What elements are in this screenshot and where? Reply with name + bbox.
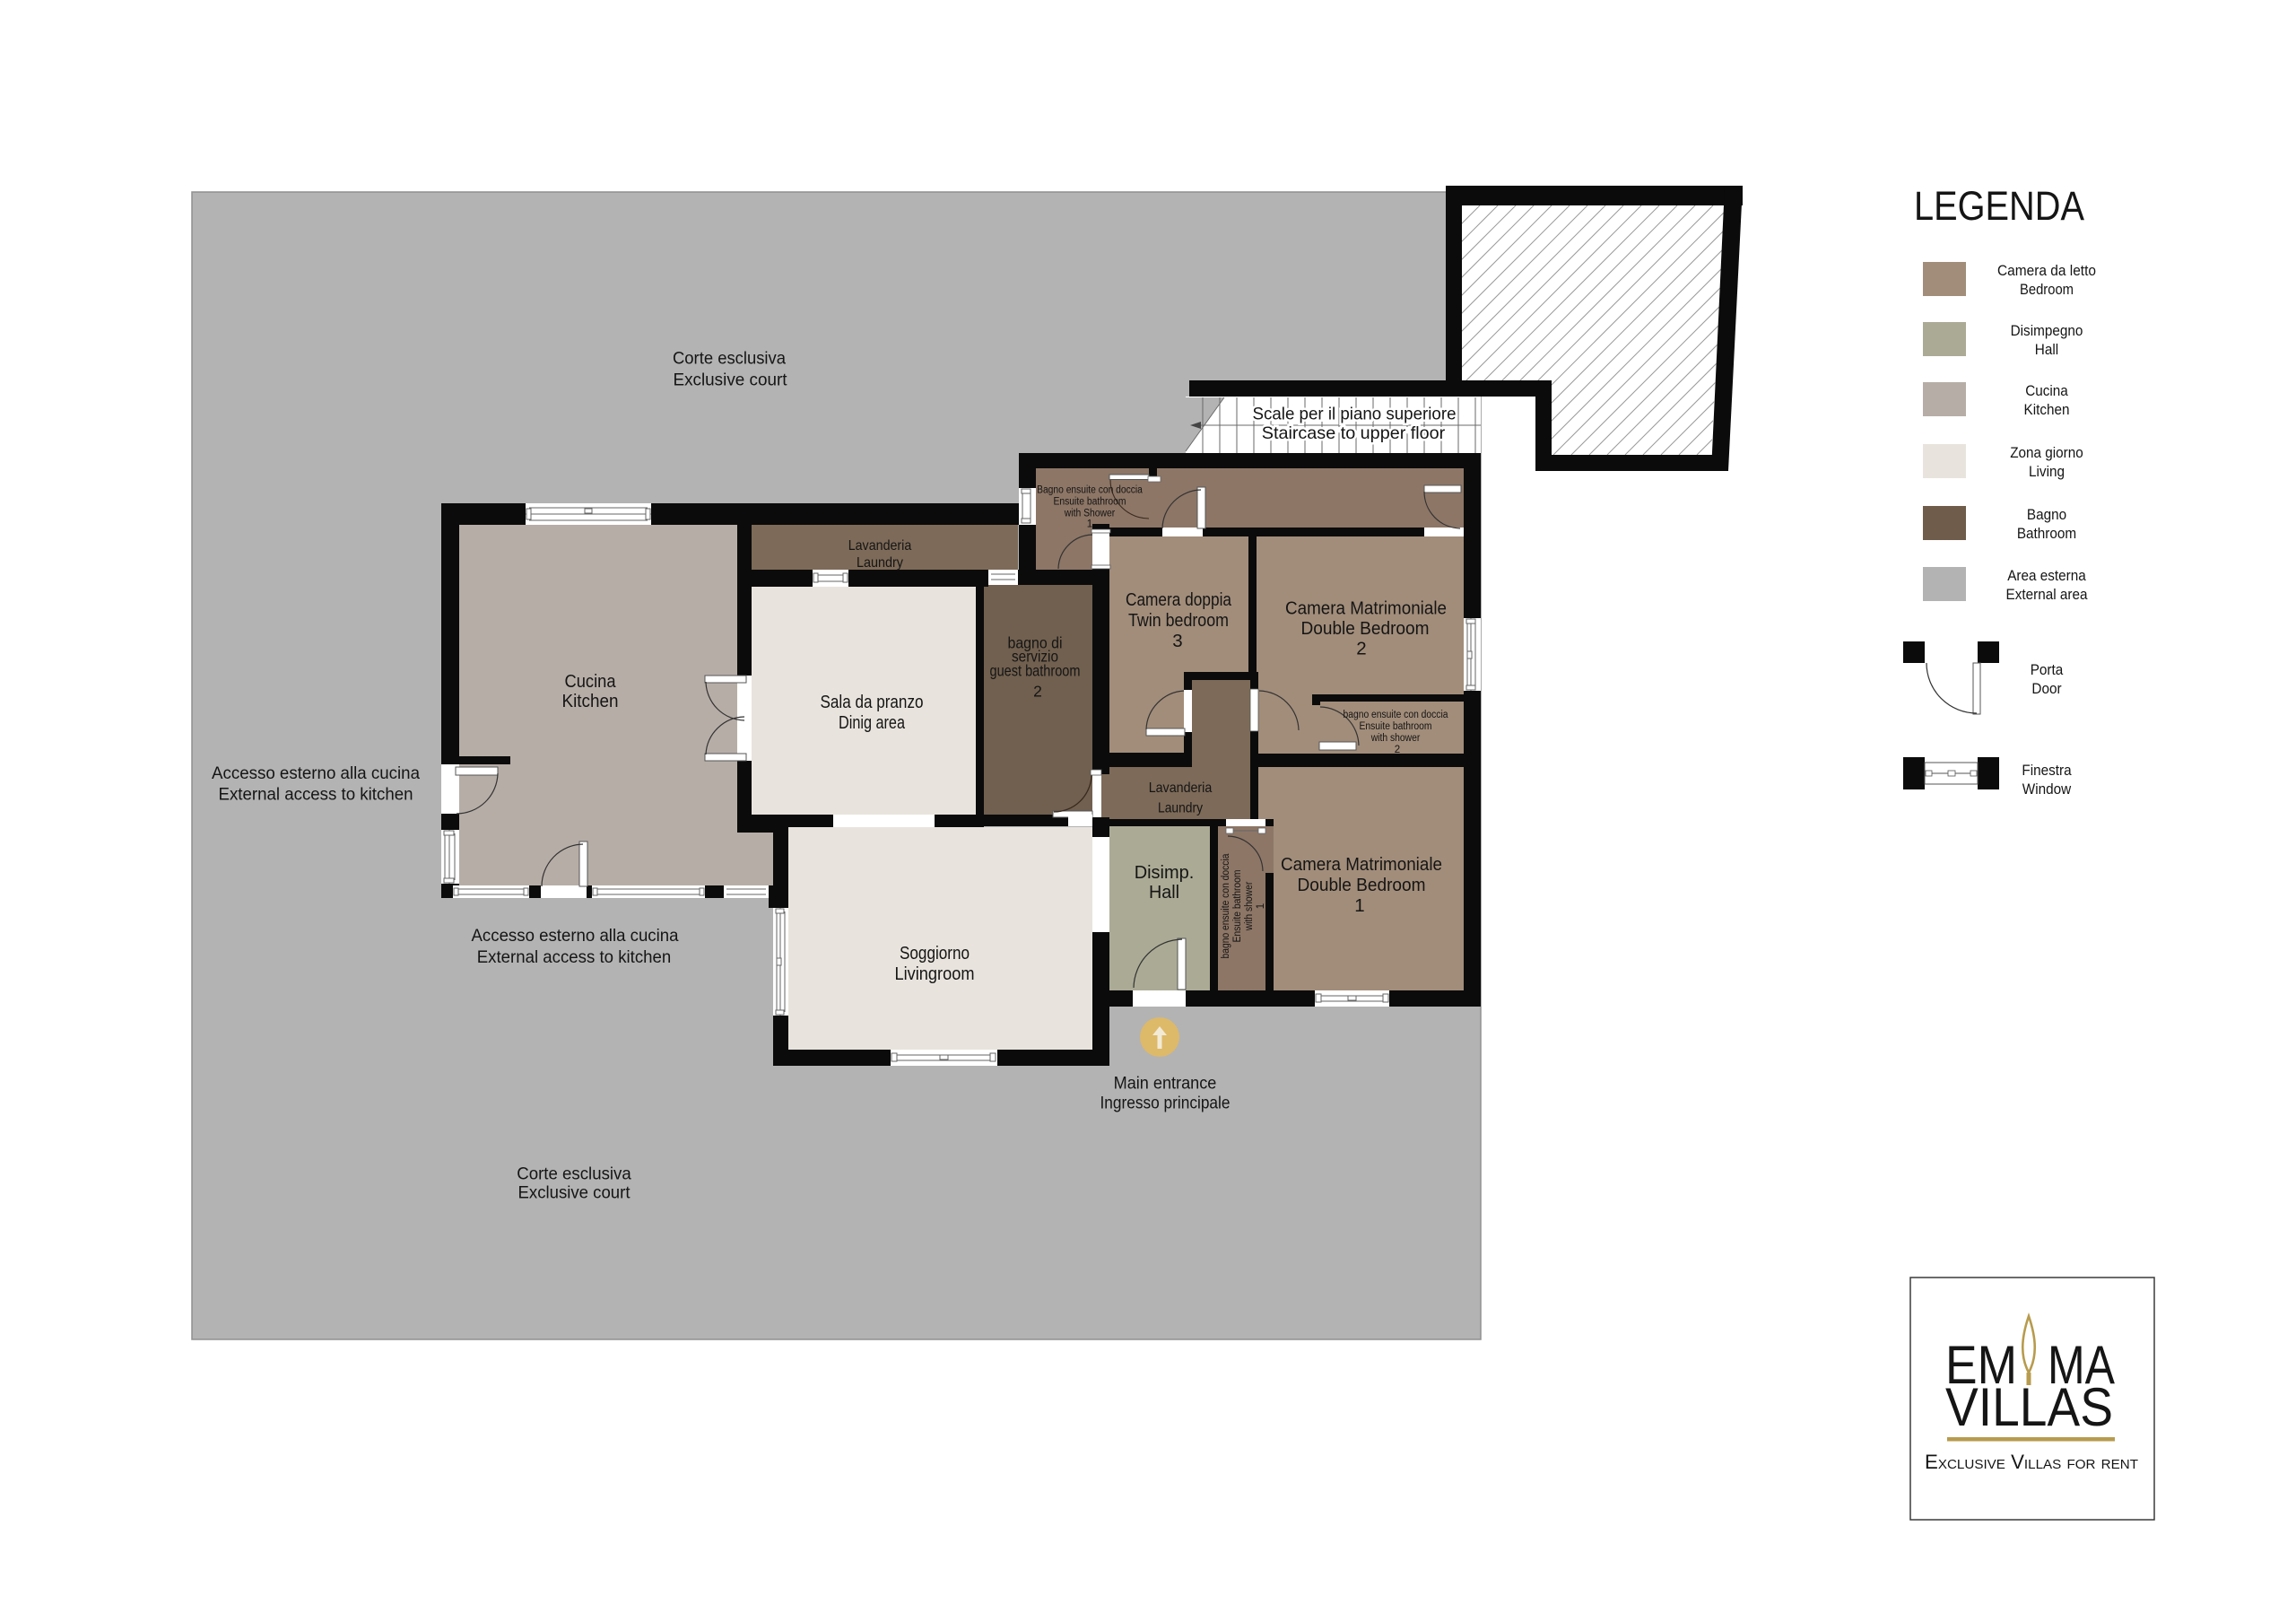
svg-text:Porta: Porta (2031, 661, 2064, 678)
svg-text:Dinig area: Dinig area (839, 712, 905, 733)
svg-text:Ensuite bathroom: Ensuite bathroom (1053, 497, 1126, 508)
svg-text:3: 3 (1172, 631, 1182, 651)
svg-text:bagno ensuite con doccia: bagno ensuite con doccia (1344, 710, 1449, 720)
svg-text:guest bathroom: guest bathroom (990, 662, 1081, 680)
svg-text:Lavanderia: Lavanderia (1149, 780, 1213, 796)
svg-text:Area esterna: Area esterna (2007, 567, 2086, 584)
svg-text:Zona giorno: Zona giorno (2010, 444, 2083, 461)
svg-text:Camera doppia: Camera doppia (1126, 589, 1231, 610)
svg-text:Hall: Hall (1149, 882, 1179, 903)
svg-text:Cucina: Cucina (2025, 382, 2068, 399)
svg-text:Living: Living (2029, 463, 2065, 480)
svg-text:Double Bedroom: Double Bedroom (1298, 875, 1426, 895)
svg-text:External area: External area (2006, 586, 2088, 603)
svg-text:Hall: Hall (2035, 341, 2058, 358)
svg-text:Disimp.: Disimp. (1135, 862, 1195, 883)
svg-text:Scale per il piano superiore: Scale per il piano superiore (1253, 405, 1457, 424)
svg-text:with Shower: with Shower (1064, 509, 1115, 519)
svg-text:Laundry: Laundry (857, 555, 903, 571)
svg-text:Cucina: Cucina (565, 671, 617, 692)
svg-text:Ingresso principale: Ingresso principale (1100, 1094, 1231, 1113)
svg-text:Ensuite bathroom: Ensuite bathroom (1232, 869, 1243, 942)
svg-text:Kitchen: Kitchen (562, 691, 619, 711)
svg-text:Door: Door (2031, 680, 2061, 697)
svg-text:2: 2 (1395, 745, 1400, 755)
svg-text:Finestra: Finestra (2022, 762, 2072, 779)
svg-text:Ensuite bathroom: Ensuite bathroom (1359, 721, 1431, 732)
svg-text:Bagno ensuite con doccia: Bagno ensuite con doccia (1037, 485, 1143, 496)
svg-text:Exclusive Villas for rent: Exclusive Villas for rent (1925, 1451, 2138, 1473)
svg-text:1: 1 (1256, 903, 1266, 909)
svg-text:External access to kitchen: External access to kitchen (477, 947, 672, 967)
svg-text:Corte esclusiva: Corte esclusiva (517, 1164, 631, 1184)
svg-text:Bagno: Bagno (2027, 506, 2066, 523)
svg-text:Twin bedroom: Twin bedroom (1128, 610, 1229, 631)
svg-text:Staircase to upper floor: Staircase to upper floor (1262, 423, 1446, 443)
svg-text:Camera Matrimoniale: Camera Matrimoniale (1285, 598, 1447, 619)
svg-text:with shower: with shower (1370, 733, 1421, 744)
svg-text:Bedroom: Bedroom (2020, 281, 2074, 298)
svg-text:Corte esclusiva: Corte esclusiva (673, 349, 786, 369)
svg-text:Window: Window (2022, 780, 2072, 798)
svg-text:Accesso esterno alla cucina: Accesso esterno alla cucina (472, 926, 679, 946)
svg-text:Laundry: Laundry (1158, 801, 1203, 816)
svg-text:VILLAS: VILLAS (1945, 1377, 2113, 1437)
svg-text:1: 1 (1087, 519, 1092, 530)
svg-text:External access to kitchen: External access to kitchen (219, 785, 413, 805)
svg-text:Lavanderia: Lavanderia (848, 538, 912, 554)
svg-text:Exclusive court: Exclusive court (518, 1183, 631, 1203)
svg-text:Accesso esterno alla cucina: Accesso esterno alla cucina (212, 763, 420, 783)
svg-text:2: 2 (1033, 683, 1042, 701)
svg-text:LEGENDA: LEGENDA (1914, 183, 2084, 229)
svg-text:Kitchen: Kitchen (2024, 401, 2070, 418)
svg-text:1: 1 (1354, 895, 1364, 916)
svg-text:bagno ensuite con doccia: bagno ensuite con doccia (1221, 853, 1231, 959)
svg-text:Double Bedroom: Double Bedroom (1301, 618, 1430, 639)
svg-text:Camera da letto: Camera da letto (1997, 262, 2096, 279)
svg-text:2: 2 (1356, 639, 1366, 659)
svg-text:Disimpegno: Disimpegno (2011, 322, 2083, 339)
svg-text:with shower: with shower (1244, 882, 1255, 932)
svg-text:Exclusive court: Exclusive court (674, 371, 788, 390)
svg-text:Livingroom: Livingroom (895, 964, 975, 984)
svg-text:Bathroom: Bathroom (2017, 525, 2076, 542)
svg-text:Main entrance: Main entrance (1114, 1074, 1217, 1094)
svg-text:Sala da pranzo: Sala da pranzo (821, 692, 924, 712)
svg-text:Camera Matrimoniale: Camera Matrimoniale (1281, 854, 1442, 875)
svg-text:Soggiorno: Soggiorno (900, 943, 970, 964)
